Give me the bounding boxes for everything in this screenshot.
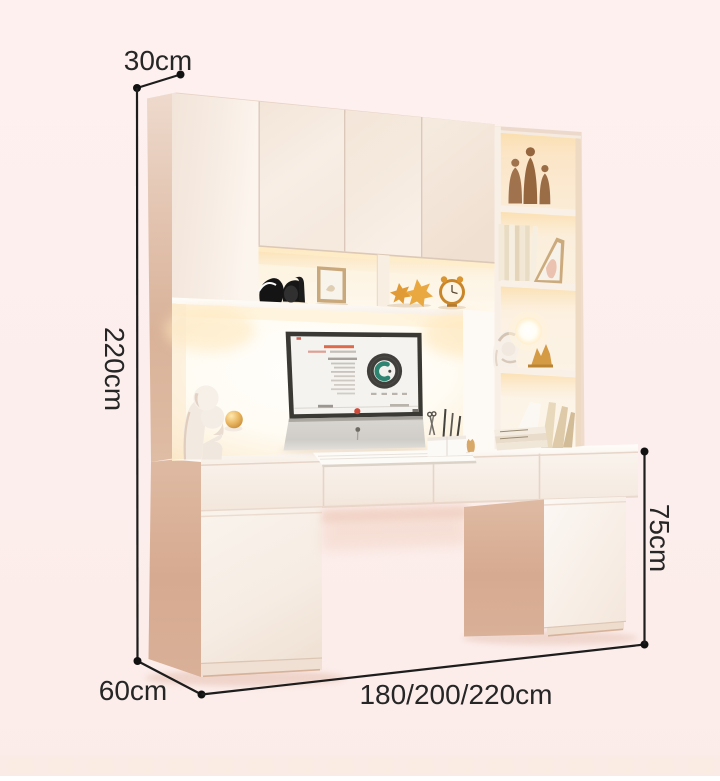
svg-text:220cm: 220cm (99, 327, 130, 411)
svg-text:180/200/220cm: 180/200/220cm (359, 679, 552, 710)
svg-text:60cm: 60cm (99, 675, 167, 706)
svg-text:75cm: 75cm (644, 504, 675, 572)
